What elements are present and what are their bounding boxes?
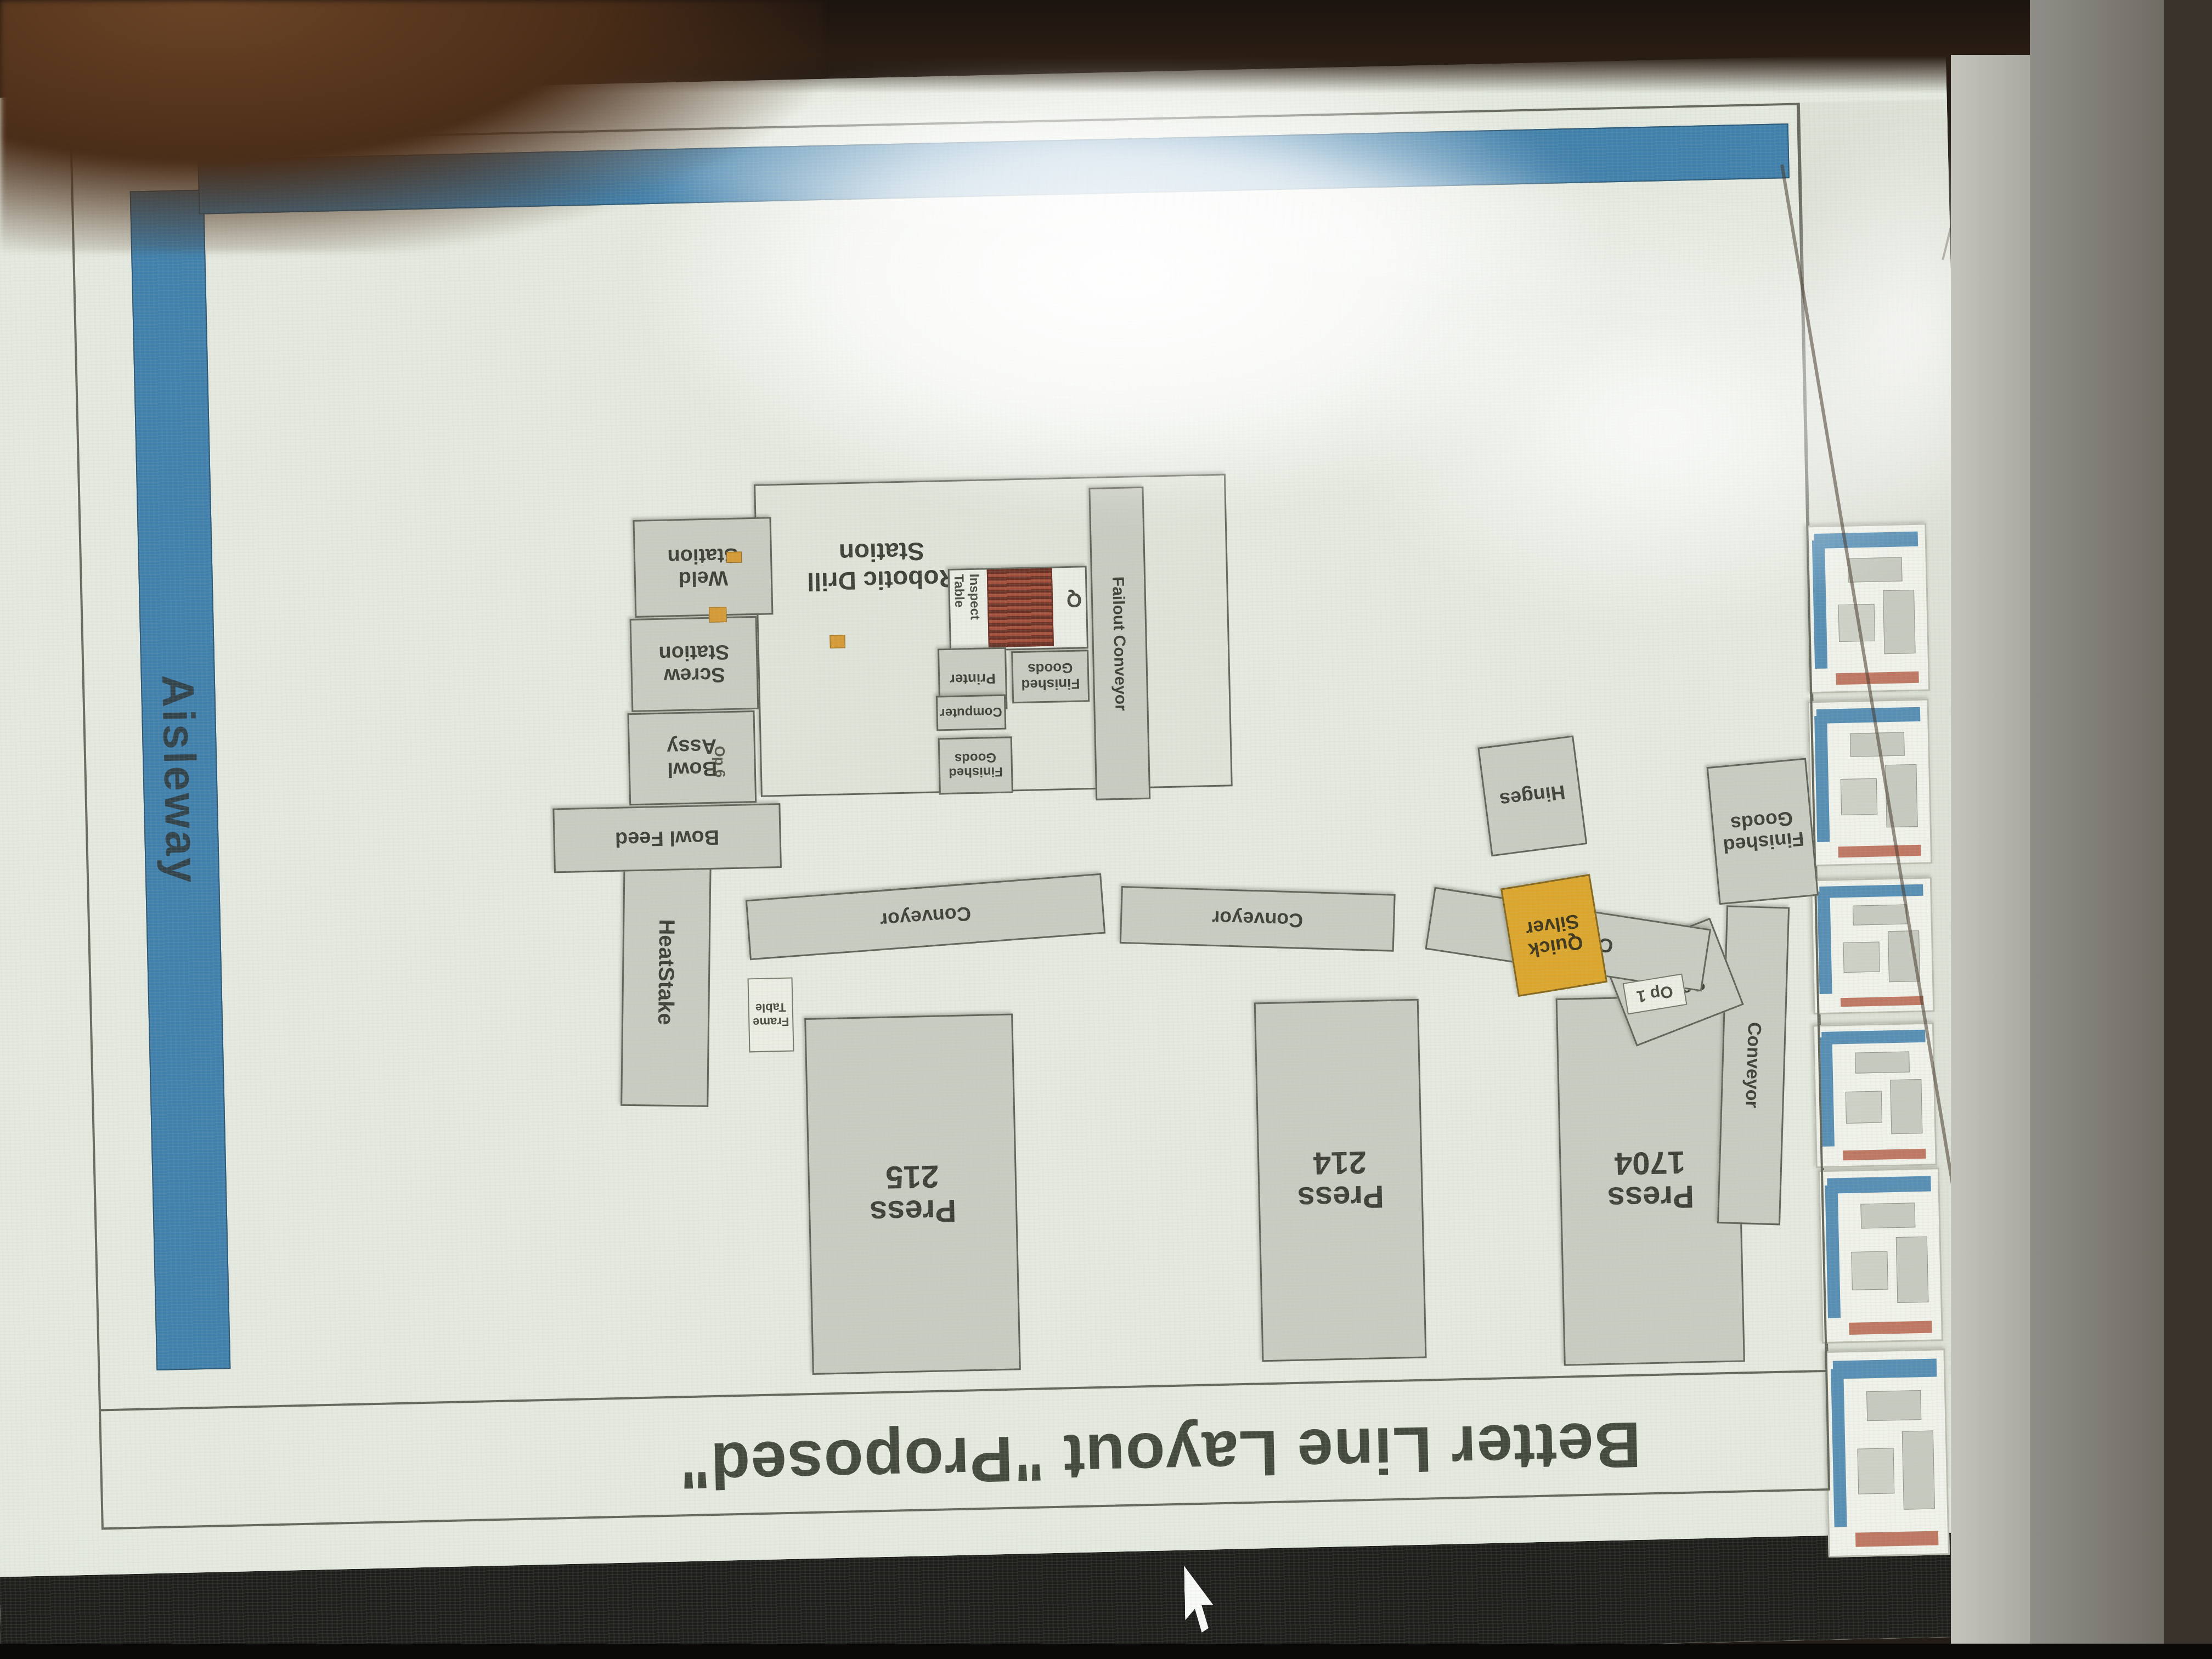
hinges-box: Hinges bbox=[1477, 735, 1587, 856]
press-214-box: Press 214 bbox=[1254, 999, 1427, 1362]
inspect-table-label: Inspect Table bbox=[951, 574, 984, 646]
monitor-screen: Better Line Layout "Proposed" Aisleway P… bbox=[0, 53, 1982, 1659]
op-marker bbox=[709, 607, 727, 623]
q-marker: Q bbox=[1059, 587, 1082, 612]
op6-tag: Op 6 bbox=[711, 746, 729, 798]
weld-station-box: Weld Station bbox=[633, 517, 773, 618]
slide-thumbnail bbox=[1818, 1167, 1943, 1344]
monitor-bezel bbox=[2030, 0, 2167, 1659]
op-marker bbox=[830, 635, 845, 648]
photo-of-screen: Better Line Layout "Proposed" Aisleway P… bbox=[0, 0, 2212, 1659]
press-1704-box: Press 1704 bbox=[1556, 995, 1745, 1366]
slide-thumbnail bbox=[1805, 523, 1930, 693]
finished-goods-box: Finished Goods bbox=[1707, 758, 1819, 905]
op-marker bbox=[726, 551, 742, 563]
slide-thumbnail bbox=[1808, 698, 1933, 866]
failout-conveyor-strip: Failout Conveyor bbox=[1088, 487, 1150, 800]
bowl-assy-box: Bowl Assy bbox=[627, 710, 757, 805]
failout-conveyor-label: Failout Conveyor bbox=[1109, 576, 1130, 711]
bowl-feed-box: Bowl Feed bbox=[552, 803, 782, 873]
conveyor-segment: Conveyor bbox=[1120, 886, 1396, 952]
thumbnail-caption-bar bbox=[1855, 1531, 1938, 1547]
finished-goods-box: Finished Goods bbox=[938, 736, 1013, 794]
heatstake-label: HeatStake bbox=[653, 919, 679, 1025]
conveyor-vertical-box: Conveyor bbox=[1717, 905, 1790, 1225]
finished-goods-box: Finished Goods bbox=[1011, 650, 1090, 703]
reject-red-box bbox=[987, 568, 1054, 648]
frame-table-tag: Frame Table bbox=[747, 978, 794, 1053]
screw-station-box: Screw Station bbox=[630, 616, 759, 712]
slide-thumbnail bbox=[1810, 877, 1935, 1014]
heatstake-box: HeatStake bbox=[620, 837, 712, 1107]
screen-crack-line bbox=[1942, 36, 1999, 260]
conveyor-label: Conveyor bbox=[879, 902, 972, 930]
slide-thumbnail bbox=[1824, 1348, 1949, 1558]
slide-thumbnail bbox=[1813, 1022, 1937, 1168]
press-215-box: Press 215 bbox=[804, 1013, 1021, 1374]
aisleway-label: Aisleway bbox=[152, 674, 208, 885]
computer-box: Computer bbox=[936, 695, 1006, 731]
monitor-edge-dark bbox=[2164, 0, 2212, 1659]
conveyor-label: Conveyor bbox=[1212, 907, 1304, 931]
quick-silver-box: Quick Silver bbox=[1500, 874, 1607, 997]
conveyor-label: Conveyor bbox=[1742, 1022, 1764, 1109]
